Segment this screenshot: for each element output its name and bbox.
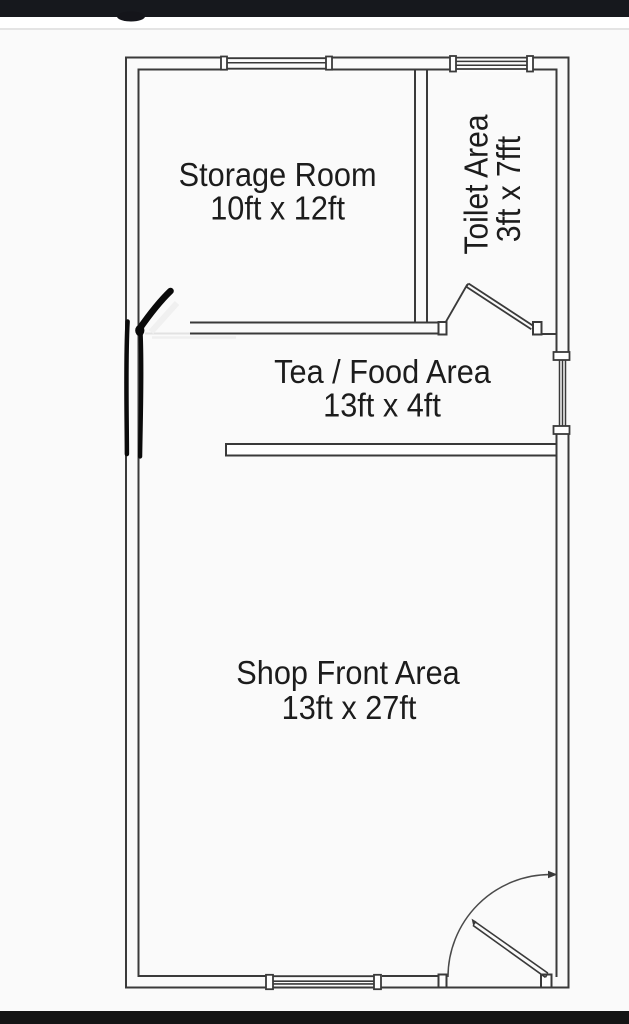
svg-text:13ft x 27ft: 13ft x 27ft [282, 689, 417, 727]
svg-text:Storage Room: Storage Room [179, 156, 377, 194]
svg-text:10ft x 12ft: 10ft x 12ft [210, 189, 345, 227]
svg-text:3ft x 7fft: 3ft x 7fft [489, 136, 527, 242]
svg-text:Tea / Food Area: Tea / Food Area [274, 353, 491, 391]
svg-text:Shop Front Area: Shop Front Area [236, 654, 460, 692]
svg-text:13ft x 4ft: 13ft x 4ft [323, 386, 441, 424]
